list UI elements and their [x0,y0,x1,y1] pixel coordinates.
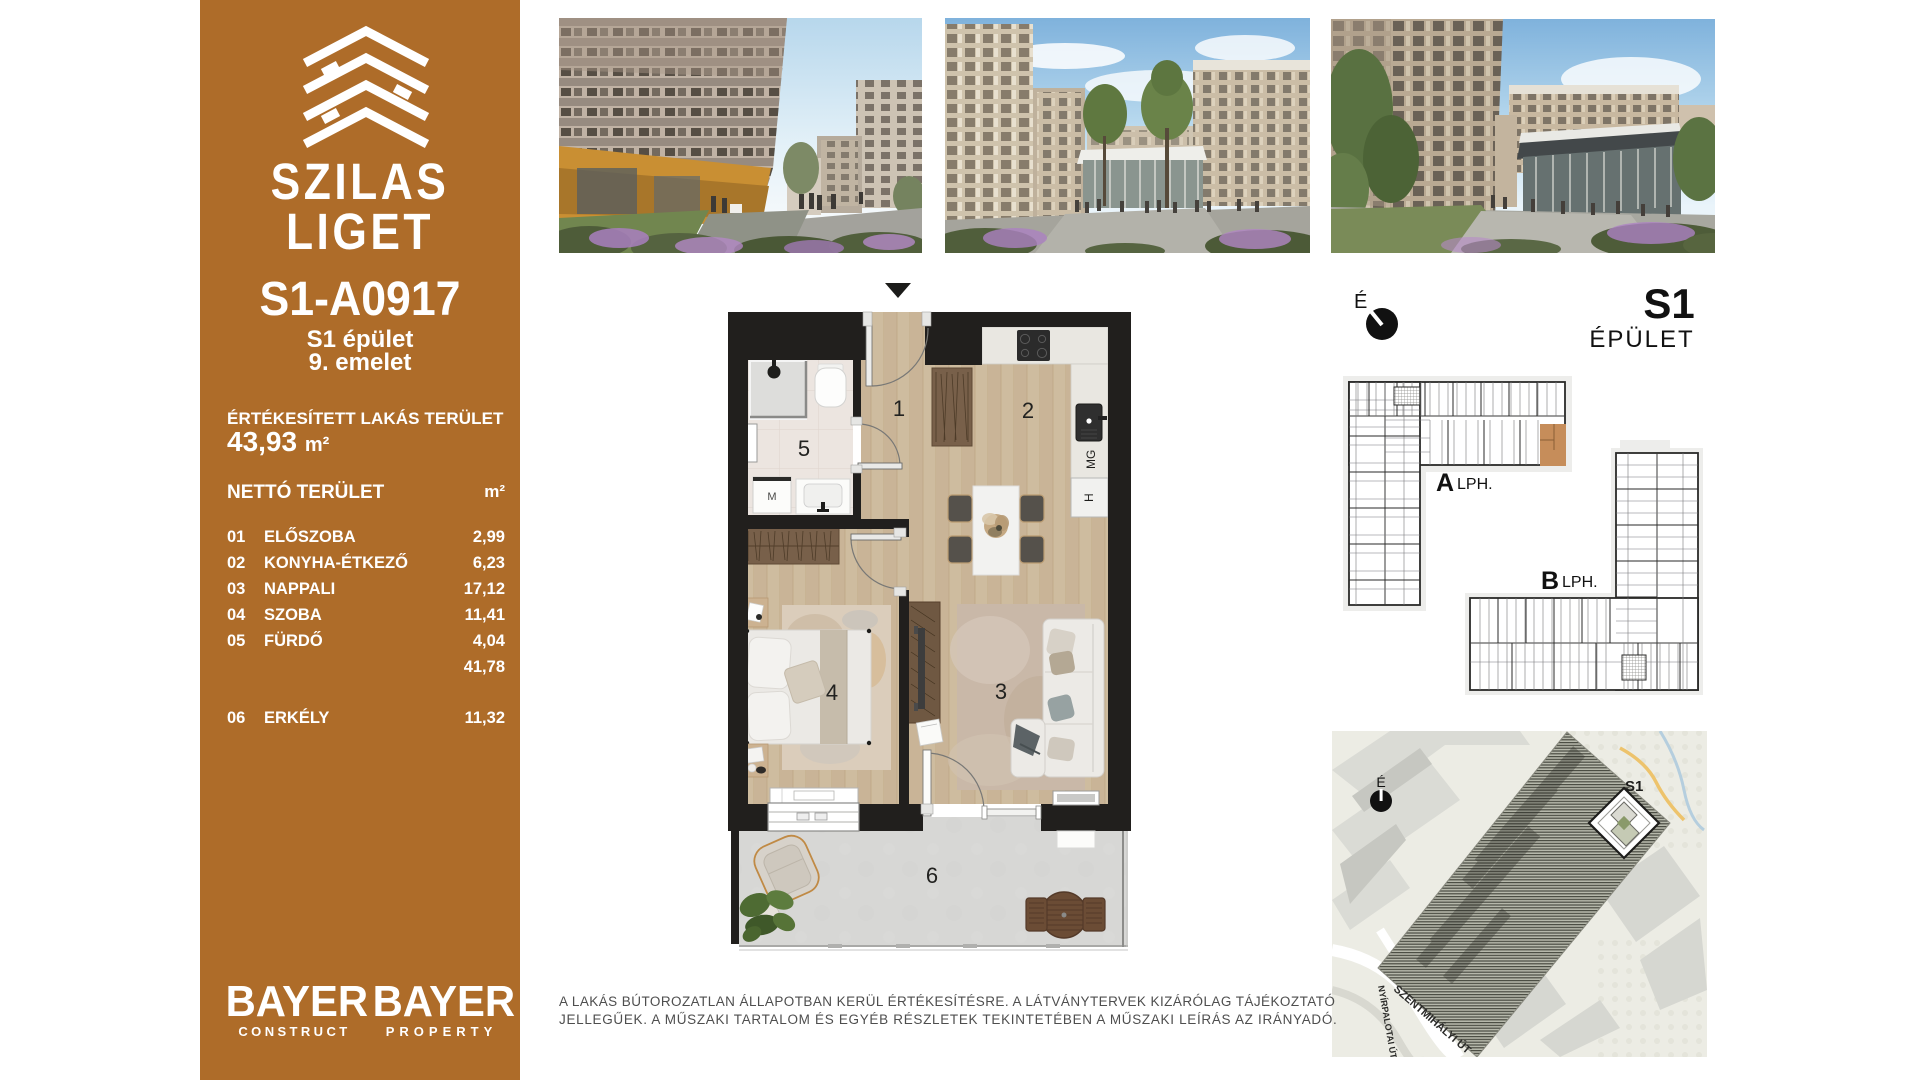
svg-text:É: É [1354,290,1367,313]
svg-text:6: 6 [926,863,938,888]
svg-text:ÉPÜLET: ÉPÜLET [1589,326,1694,353]
svg-text:3: 3 [995,679,1007,704]
svg-text:B: B [1541,567,1559,595]
svg-text:S1: S1 [1625,778,1643,795]
svg-text:S1: S1 [1643,280,1694,327]
svg-text:MG: MG [1084,450,1098,469]
svg-text:2: 2 [1022,398,1034,423]
svg-text:5: 5 [798,436,810,461]
svg-text:4: 4 [826,680,838,705]
svg-text:A: A [1436,469,1454,497]
svg-text:É: É [1376,774,1385,790]
svg-text:1: 1 [893,396,905,421]
svg-text:LPH.: LPH. [1457,476,1493,493]
svg-text:M: M [767,491,776,503]
svg-text:H: H [1082,493,1096,502]
svg-text:LPH.: LPH. [1562,574,1598,591]
